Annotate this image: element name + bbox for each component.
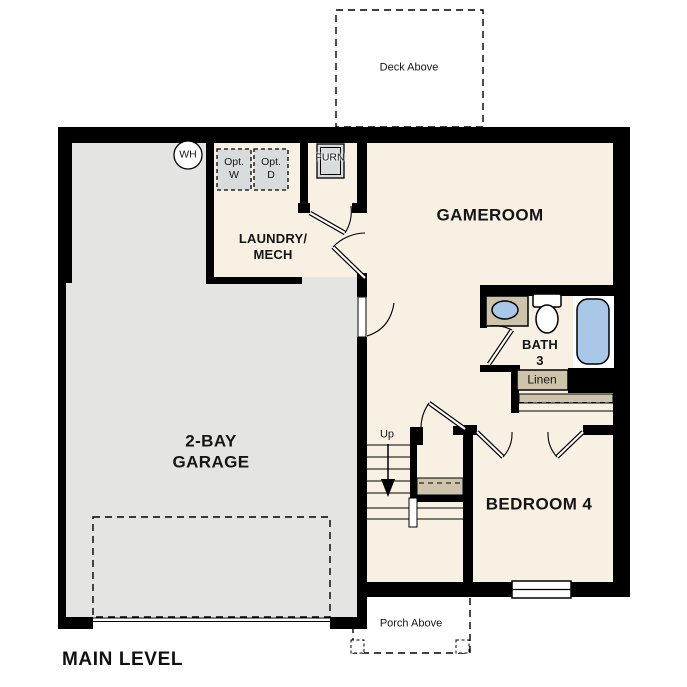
water-heater-label: WH <box>179 149 197 162</box>
gameroom-label: GAMEROOM <box>436 206 543 227</box>
plan-title: MAIN LEVEL <box>62 649 183 671</box>
garage-label: 2-BAY GARAGE <box>172 431 249 472</box>
porch-post <box>456 640 469 653</box>
deck-above-label: Deck Above <box>380 61 439 74</box>
floor-plan: Deck Above GAMEROOM FURN WH Opt. W Opt. … <box>0 0 687 687</box>
floor-plan-drawing <box>0 0 687 687</box>
porch-post <box>351 640 364 653</box>
furnace-label: FURN <box>315 152 344 165</box>
laundry-mech-label: LAUNDRY/ MECH <box>239 231 307 263</box>
opt-dryer-label: Opt. D <box>261 156 281 182</box>
stairs-up-label: Up <box>380 428 394 441</box>
bathtub <box>573 296 614 368</box>
stair-closet-door <box>409 498 417 527</box>
toilet <box>533 294 561 333</box>
vanity-sink <box>486 296 528 326</box>
bedroom-4-label: BEDROOM 4 <box>486 495 593 516</box>
bedroom-window <box>512 581 571 598</box>
linen-label: Linen <box>527 373 556 388</box>
understairs-closet-shelf <box>417 478 463 495</box>
bath-3-label: BATH 3 <box>522 337 558 369</box>
porch-above-label: Porch Above <box>380 617 442 630</box>
opt-washer-label: Opt. W <box>224 156 244 182</box>
